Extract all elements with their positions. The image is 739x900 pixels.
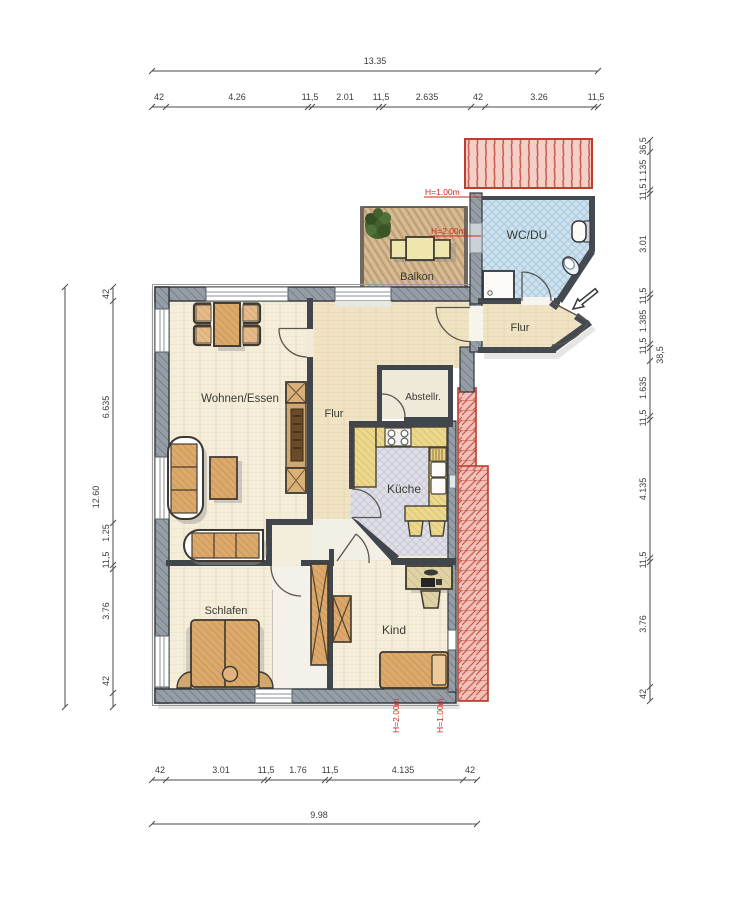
svg-text:1.635: 1.635 [638,377,648,400]
svg-text:36,5: 36,5 [638,137,648,155]
svg-text:1.76: 1.76 [289,765,307,775]
svg-text:11,5: 11,5 [101,552,111,569]
svg-text:WC/DU: WC/DU [507,228,548,242]
svg-text:11,5: 11,5 [638,338,648,355]
svg-text:42: 42 [638,689,648,699]
svg-text:4.26: 4.26 [228,92,246,102]
svg-text:Kind: Kind [382,623,406,637]
svg-text:9.98: 9.98 [310,810,328,820]
svg-text:11,5: 11,5 [588,92,605,102]
svg-text:4.135: 4.135 [638,478,648,501]
svg-text:Wohnen/Essen: Wohnen/Essen [201,393,279,405]
svg-text:11,5: 11,5 [322,765,339,775]
svg-text:Abstellr.: Abstellr. [405,392,441,403]
svg-text:42: 42 [473,92,483,102]
svg-text:H=1.00m: H=1.00m [435,698,445,733]
svg-text:12.60: 12.60 [91,486,101,509]
svg-text:Flur: Flur [511,322,530,334]
svg-text:2.01: 2.01 [336,92,354,102]
svg-text:Schlafen: Schlafen [205,605,248,617]
svg-text:42: 42 [154,92,164,102]
svg-text:11,5: 11,5 [373,92,390,102]
svg-text:H=2.00m: H=2.00m [431,226,466,236]
svg-text:11,5: 11,5 [638,552,648,569]
svg-text:4.135: 4.135 [392,765,415,775]
svg-text:1.135: 1.135 [638,160,648,183]
svg-text:H=2.00m: H=2.00m [391,698,401,733]
svg-text:42: 42 [101,289,111,299]
svg-text:Flur: Flur [325,408,344,420]
svg-text:42: 42 [101,676,111,686]
svg-text:11,5: 11,5 [258,765,275,775]
svg-text:42: 42 [465,765,475,775]
svg-text:3.76: 3.76 [101,602,111,620]
svg-text:38,5: 38,5 [655,346,665,364]
svg-text:3.01: 3.01 [212,765,230,775]
svg-text:1.25: 1.25 [101,524,111,542]
svg-text:1.385: 1.385 [638,310,648,333]
svg-text:2.635: 2.635 [416,92,439,102]
svg-text:11,5: 11,5 [638,410,648,427]
svg-text:H=1.00m: H=1.00m [425,187,460,197]
svg-text:3.26: 3.26 [530,92,548,102]
svg-text:11,5: 11,5 [638,184,648,201]
svg-text:Balkon: Balkon [400,271,434,283]
svg-text:6.635: 6.635 [101,396,111,419]
svg-text:Küche: Küche [387,482,421,496]
svg-text:11,5: 11,5 [638,288,648,305]
svg-text:42: 42 [155,765,165,775]
svg-text:13.35: 13.35 [364,56,387,66]
svg-text:3.01: 3.01 [638,235,648,253]
svg-text:11,5: 11,5 [302,92,319,102]
svg-text:3.76: 3.76 [638,615,648,633]
